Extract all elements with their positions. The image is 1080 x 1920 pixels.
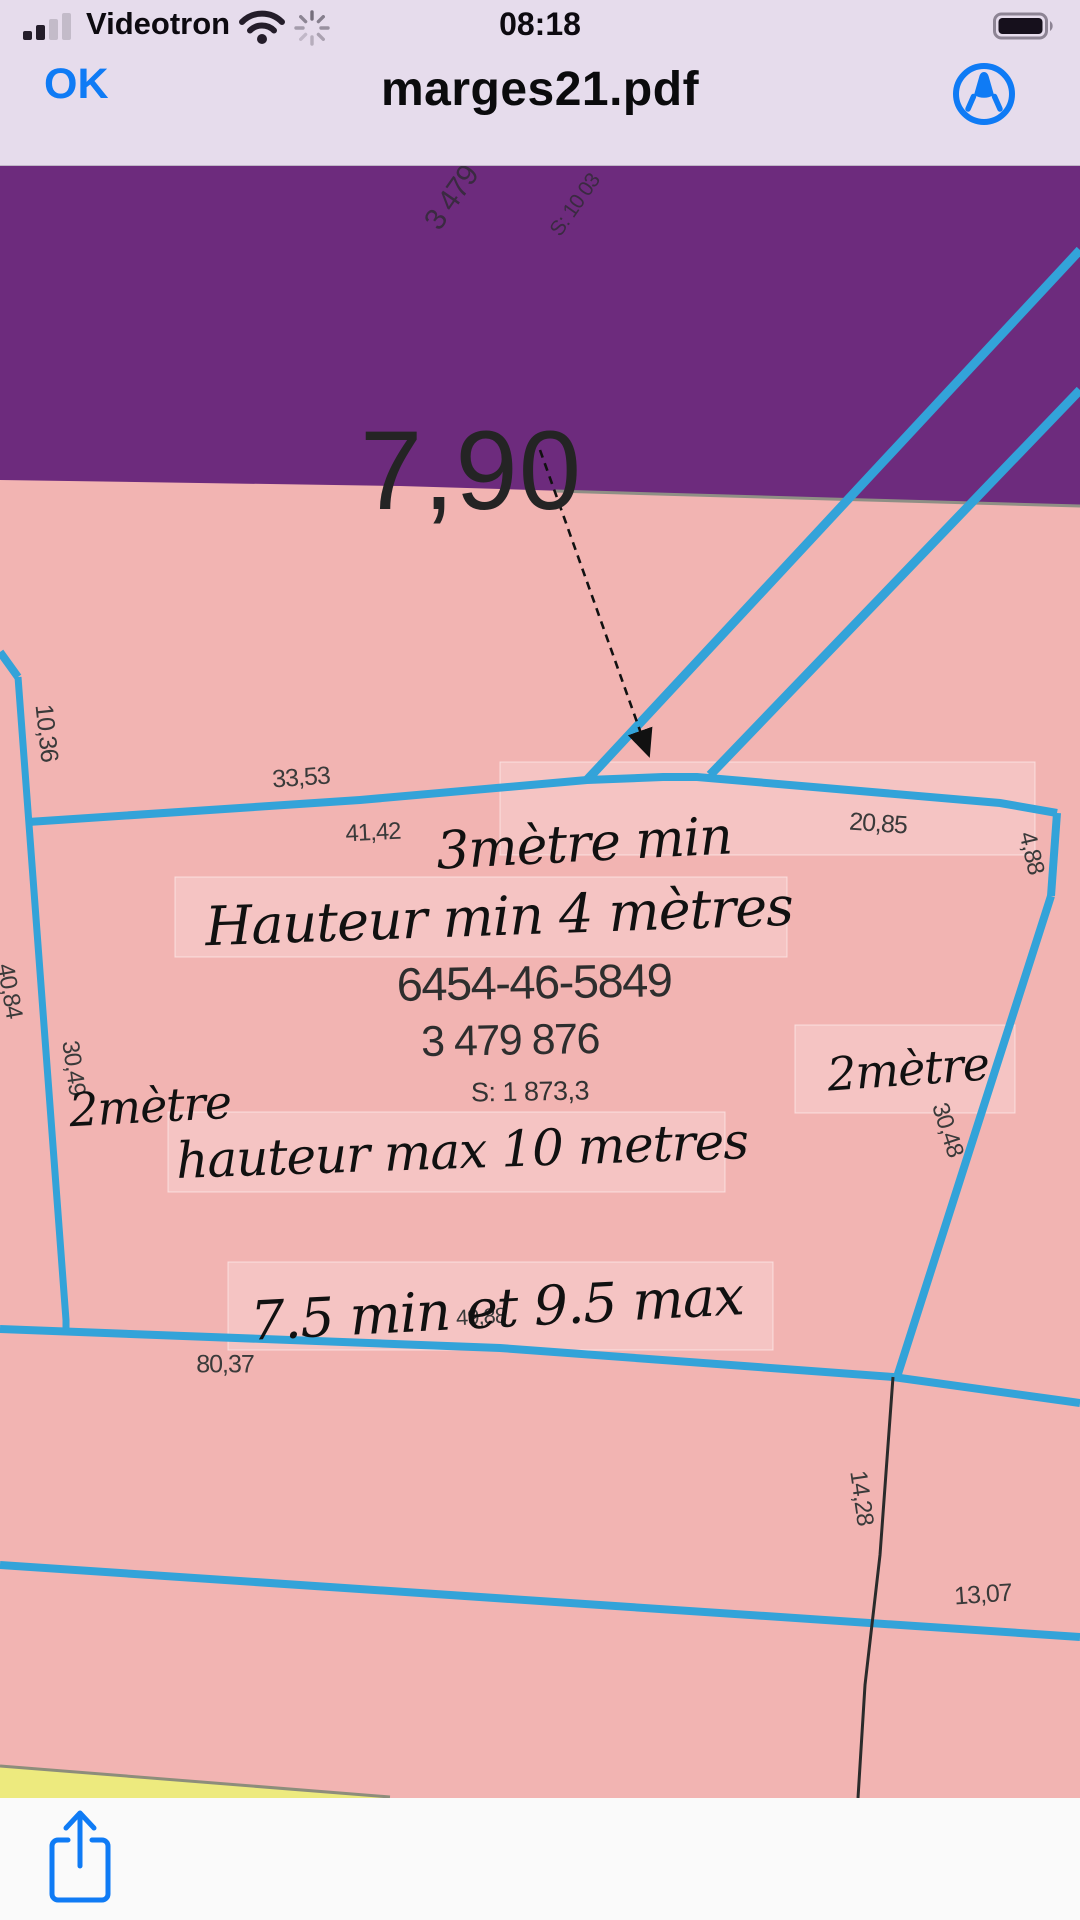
map-label: 3mètre min — [435, 810, 733, 877]
map-label: 6454-46-5849 — [396, 956, 671, 1008]
battery-full-icon — [993, 10, 1063, 42]
pdf-page-canvas[interactable]: 3 479S: 10 037,9010,3633,5341,4220,854,8… — [0, 165, 1080, 1798]
nav-bar: OK marges21.pdf — [0, 50, 1080, 166]
map-label: 13,07 — [953, 1581, 1012, 1610]
map-label: S: 1 873,3 — [471, 1077, 590, 1106]
status-bar: Videotron 08:18 — [0, 0, 1080, 50]
map-label: 2mètre — [68, 1079, 232, 1133]
status-time: 08:18 — [0, 6, 1080, 43]
map-label: 80,37 — [196, 1353, 254, 1378]
map-label: 2mètre — [826, 1040, 991, 1097]
map-label: 20,85 — [848, 810, 907, 839]
markup-button[interactable] — [948, 58, 1020, 130]
share-icon — [40, 1804, 120, 1908]
map-label: 7,90 — [360, 415, 582, 527]
map-label: 3 479 876 — [421, 1018, 600, 1064]
document-title: marges21.pdf — [0, 62, 1080, 117]
map-label: 10,36 — [31, 703, 62, 763]
map-label: 14,28 — [845, 1469, 876, 1527]
bottom-toolbar — [0, 1798, 1080, 1920]
markup-pen-icon — [948, 58, 1020, 130]
iphone-screen: Videotron 08:18 OK m — [0, 0, 1080, 1920]
share-button[interactable] — [40, 1804, 120, 1908]
map-label: 41,42 — [345, 820, 401, 847]
map-label: 33,53 — [271, 764, 330, 793]
